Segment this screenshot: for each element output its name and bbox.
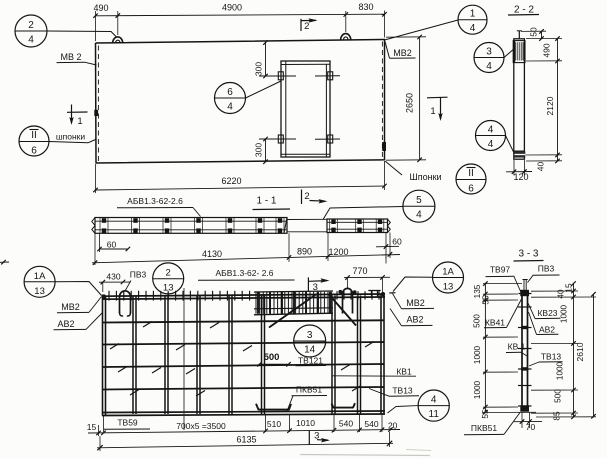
svg-text:1000: 1000: [473, 380, 482, 399]
svg-text:120: 120: [513, 172, 528, 182]
svg-text:13: 13: [34, 286, 45, 297]
svg-text:АВ2: АВ2: [406, 315, 423, 325]
svg-text:4130: 4130: [202, 249, 222, 259]
svg-text:МВ2: МВ2: [393, 48, 412, 58]
svg-text:6220: 6220: [221, 176, 241, 186]
svg-text:ТВ13: ТВ13: [541, 352, 562, 362]
svg-text:890: 890: [297, 247, 312, 257]
svg-text:КВ23: КВ23: [537, 308, 557, 318]
svg-text:430: 430: [106, 272, 120, 282]
svg-text:АВ2: АВ2: [57, 319, 74, 329]
svg-text:50: 50: [529, 27, 539, 37]
svg-text:ТВ13: ТВ13: [392, 386, 413, 396]
svg-text:4: 4: [416, 210, 422, 221]
svg-text:АБВ1.3-62-2.6: АБВ1.3-62-2.6: [127, 196, 183, 206]
svg-text:ПВ3: ПВ3: [130, 270, 147, 280]
svg-text:3: 3: [307, 330, 313, 341]
svg-text:4: 4: [227, 102, 233, 113]
svg-text:1 - 1: 1 - 1: [256, 196, 276, 207]
svg-text:1: 1: [430, 106, 435, 117]
svg-text:КВ1: КВ1: [396, 367, 412, 377]
svg-text:2: 2: [28, 20, 34, 31]
svg-text:2650: 2650: [405, 93, 415, 113]
svg-text:КВ 1: КВ 1: [508, 342, 526, 352]
svg-text:510: 510: [267, 419, 281, 429]
svg-text:13: 13: [163, 282, 174, 293]
svg-text:1000: 1000: [560, 304, 569, 323]
svg-text:4: 4: [488, 139, 494, 150]
svg-text:55: 55: [481, 409, 490, 419]
svg-text:4900: 4900: [222, 3, 242, 13]
svg-text:АБВ1.3-62- 2.6: АБВ1.3-62- 2.6: [215, 268, 273, 278]
svg-text:МВ2: МВ2: [406, 298, 425, 308]
svg-text:4: 4: [488, 125, 494, 136]
svg-text:500: 500: [473, 314, 482, 328]
svg-text:АВ2: АВ2: [539, 325, 555, 335]
svg-text:II: II: [31, 130, 37, 141]
svg-text:ПВ3: ПВ3: [538, 264, 555, 274]
svg-text:4: 4: [28, 35, 34, 46]
svg-text:490: 490: [93, 3, 108, 13]
svg-text:770: 770: [352, 266, 367, 276]
svg-text:1А: 1А: [442, 267, 454, 278]
svg-text:ТВ59: ТВ59: [117, 418, 138, 428]
svg-text:6: 6: [227, 87, 233, 98]
svg-text:1010: 1010: [296, 418, 315, 428]
svg-text:4: 4: [431, 395, 437, 406]
svg-text:1А: 1А: [34, 271, 46, 282]
svg-text:2610: 2610: [575, 342, 585, 361]
svg-text:МВ2: МВ2: [61, 302, 80, 312]
svg-text:ПКВ51: ПКВ51: [296, 385, 322, 395]
svg-text:шпонки: шпонки: [56, 132, 86, 142]
svg-text:1000: 1000: [556, 361, 565, 380]
svg-text:II: II: [468, 168, 474, 179]
svg-text:3: 3: [486, 47, 492, 58]
svg-text:ПКВ51: ПКВ51: [471, 423, 497, 433]
svg-text:540: 540: [364, 419, 378, 429]
svg-text:6: 6: [468, 184, 474, 195]
svg-text:ТВ121: ТВ121: [298, 356, 323, 366]
svg-text:500: 500: [554, 389, 563, 403]
svg-text:14: 14: [304, 345, 316, 356]
svg-text:85: 85: [553, 411, 562, 421]
svg-text:40: 40: [557, 289, 566, 299]
svg-text:3 - 3: 3 - 3: [518, 249, 538, 260]
svg-text:15: 15: [565, 283, 574, 293]
svg-text:1: 1: [470, 9, 476, 20]
svg-text:2: 2: [304, 21, 309, 32]
svg-text:Шпонки: Шпонки: [409, 172, 441, 182]
svg-text:15: 15: [87, 422, 97, 432]
svg-text:1: 1: [77, 116, 82, 127]
svg-text:2: 2: [304, 191, 309, 202]
svg-text:55: 55: [482, 295, 491, 305]
svg-text:70: 70: [526, 422, 536, 432]
svg-text:540: 540: [339, 419, 353, 429]
svg-text:830: 830: [358, 2, 373, 12]
svg-text:3: 3: [313, 282, 318, 293]
svg-text:300: 300: [254, 143, 264, 157]
svg-text:ТВ97: ТВ97: [490, 265, 511, 275]
svg-text:60: 60: [107, 240, 117, 250]
svg-text:11: 11: [429, 409, 440, 420]
svg-text:500: 500: [264, 352, 280, 363]
svg-text:5: 5: [416, 195, 422, 206]
svg-text:4: 4: [470, 23, 476, 34]
svg-text:20: 20: [388, 421, 398, 431]
svg-text:60: 60: [392, 237, 402, 247]
svg-text:МВ 2: МВ 2: [60, 52, 81, 62]
svg-text:490: 490: [542, 43, 552, 57]
svg-text:6135: 6135: [236, 435, 256, 445]
svg-text:КВ41: КВ41: [485, 318, 505, 328]
svg-text:1000: 1000: [473, 345, 482, 364]
svg-text:6: 6: [31, 146, 37, 157]
svg-text:1200: 1200: [328, 247, 348, 257]
svg-text:40: 40: [536, 162, 546, 172]
svg-text:300: 300: [254, 62, 264, 76]
svg-text:13: 13: [443, 282, 454, 293]
svg-text:2120: 2120: [545, 96, 555, 115]
svg-text:700х5 =3500: 700х5 =3500: [176, 421, 226, 431]
svg-text:2: 2: [166, 267, 171, 278]
svg-text:2 - 2: 2 - 2: [514, 5, 534, 16]
svg-text:4: 4: [486, 61, 492, 72]
